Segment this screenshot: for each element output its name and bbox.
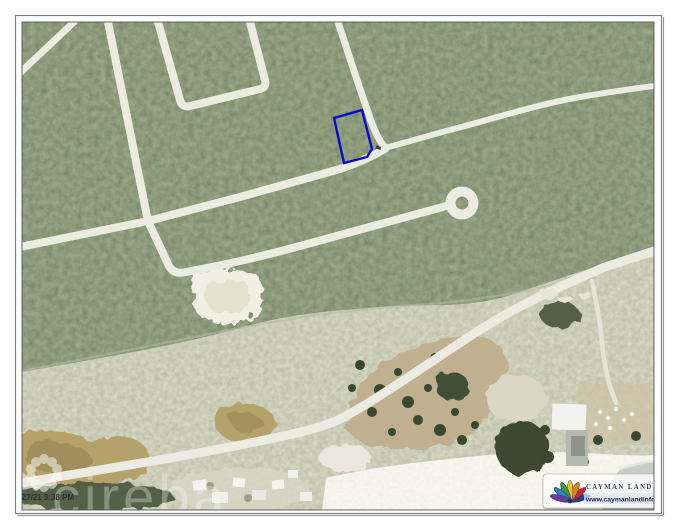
timestamp-watermark: 1/27/21 3:38 PM xyxy=(15,493,74,502)
building xyxy=(300,492,312,501)
building xyxy=(288,470,298,478)
sand-clearing xyxy=(486,374,546,422)
cireba-watermark-text: cireba xyxy=(52,465,229,528)
tree-clump xyxy=(435,372,469,400)
cireba-watermark: cireba xyxy=(26,454,229,528)
beach-sand-patch xyxy=(319,444,371,472)
building xyxy=(571,436,585,456)
building xyxy=(233,477,246,487)
aerial-map-image: cireba 1/27/21 3:38 PM CAYMAN LAND INFO … xyxy=(0,0,675,529)
cleared-land xyxy=(578,382,654,444)
building xyxy=(252,490,266,500)
tree-clump xyxy=(540,302,580,328)
building xyxy=(272,479,285,489)
cayman-land-info-logo: CAYMAN LAND INFO www.caymanlandinfo.ky xyxy=(543,474,675,508)
tree xyxy=(244,494,252,502)
map-photo: cireba 1/27/21 3:38 PM CAYMAN LAND INFO … xyxy=(6,22,675,528)
brand-url: www.caymanlandinfo.ky xyxy=(585,497,665,504)
building xyxy=(552,403,587,430)
screenshot-root: cireba 1/27/21 3:38 PM CAYMAN LAND INFO … xyxy=(0,0,675,529)
